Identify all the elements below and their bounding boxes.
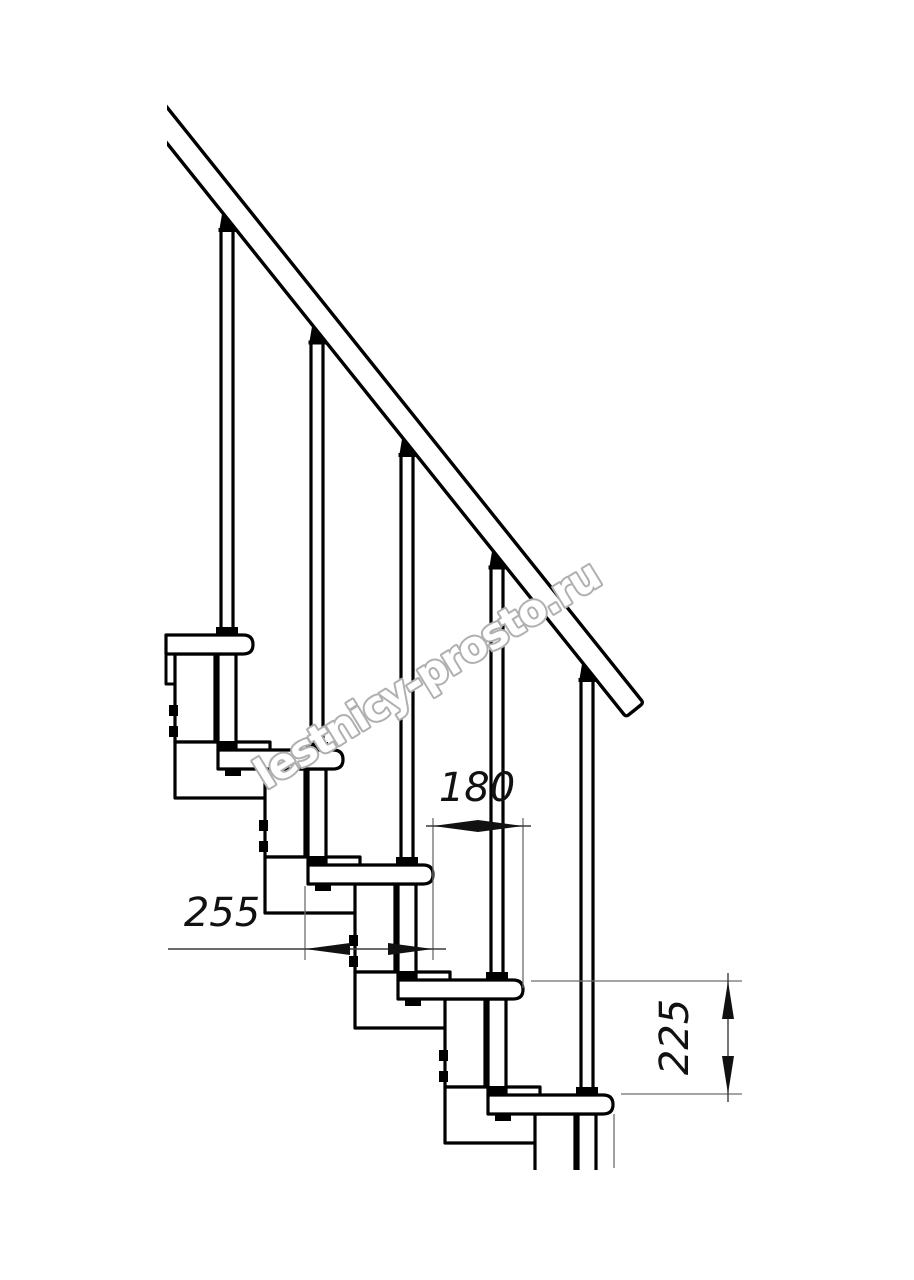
handrail-group [132, 86, 643, 717]
bolt [259, 841, 268, 852]
baluster-post [311, 343, 323, 745]
dimension-label-depth: 255 [184, 890, 260, 936]
support-column [355, 884, 395, 972]
tread-bolt [495, 1113, 511, 1121]
staircase-technical-drawing: 180 255 225 lestnicy-prosto.ru [0, 0, 914, 1280]
baluster-pipe [308, 769, 326, 865]
baluster-pipe [398, 884, 416, 980]
cut-module-stub [166, 656, 174, 684]
arrow-icon [305, 943, 350, 955]
staircase-drawing-page: 180 255 225 lestnicy-prosto.ru [0, 0, 914, 1280]
tread [488, 1095, 613, 1114]
staircase-structure [166, 214, 613, 1254]
baluster-collar [399, 453, 416, 457]
baluster-base [576, 1087, 598, 1096]
support-column [535, 1114, 575, 1202]
tread-bolt [315, 883, 331, 891]
baluster-collar [489, 566, 506, 570]
pipe-foot [487, 1086, 507, 1096]
baluster-collar [219, 228, 236, 232]
tread-bolt [225, 768, 241, 776]
tread [398, 980, 523, 999]
arrow-icon [722, 981, 734, 1019]
baluster-post [581, 680, 593, 1089]
tread [166, 635, 253, 654]
pipe-foot [217, 741, 237, 751]
bolt [259, 820, 268, 831]
baluster-pipe [488, 999, 506, 1095]
bolt [349, 935, 358, 946]
support-column [445, 999, 485, 1087]
baluster-base [396, 857, 418, 866]
pipe-foot [397, 971, 417, 981]
bolt [349, 956, 358, 967]
bolt [439, 1050, 448, 1061]
support-column [175, 654, 215, 742]
arrow-icon [722, 1056, 734, 1094]
pipe-foot [307, 856, 327, 866]
handrail [132, 86, 643, 717]
dimension-label-rise: 225 [652, 999, 698, 1075]
baluster-post [221, 230, 233, 629]
tread-bolt [405, 998, 421, 1006]
baluster-pipe [218, 654, 236, 750]
baluster-base [216, 627, 238, 636]
watermark-text: lestnicy-prosto.ru [246, 550, 608, 798]
baluster-collar [579, 678, 596, 682]
tread [308, 865, 433, 884]
bolt [169, 705, 178, 716]
dimension-label-run: 180 [439, 765, 515, 811]
bolt [169, 726, 178, 737]
baluster-base [486, 972, 508, 981]
bolt [439, 1071, 448, 1082]
baluster-collar [309, 341, 326, 345]
arrow-icon [433, 820, 478, 832]
baluster-pipe [578, 1114, 596, 1254]
